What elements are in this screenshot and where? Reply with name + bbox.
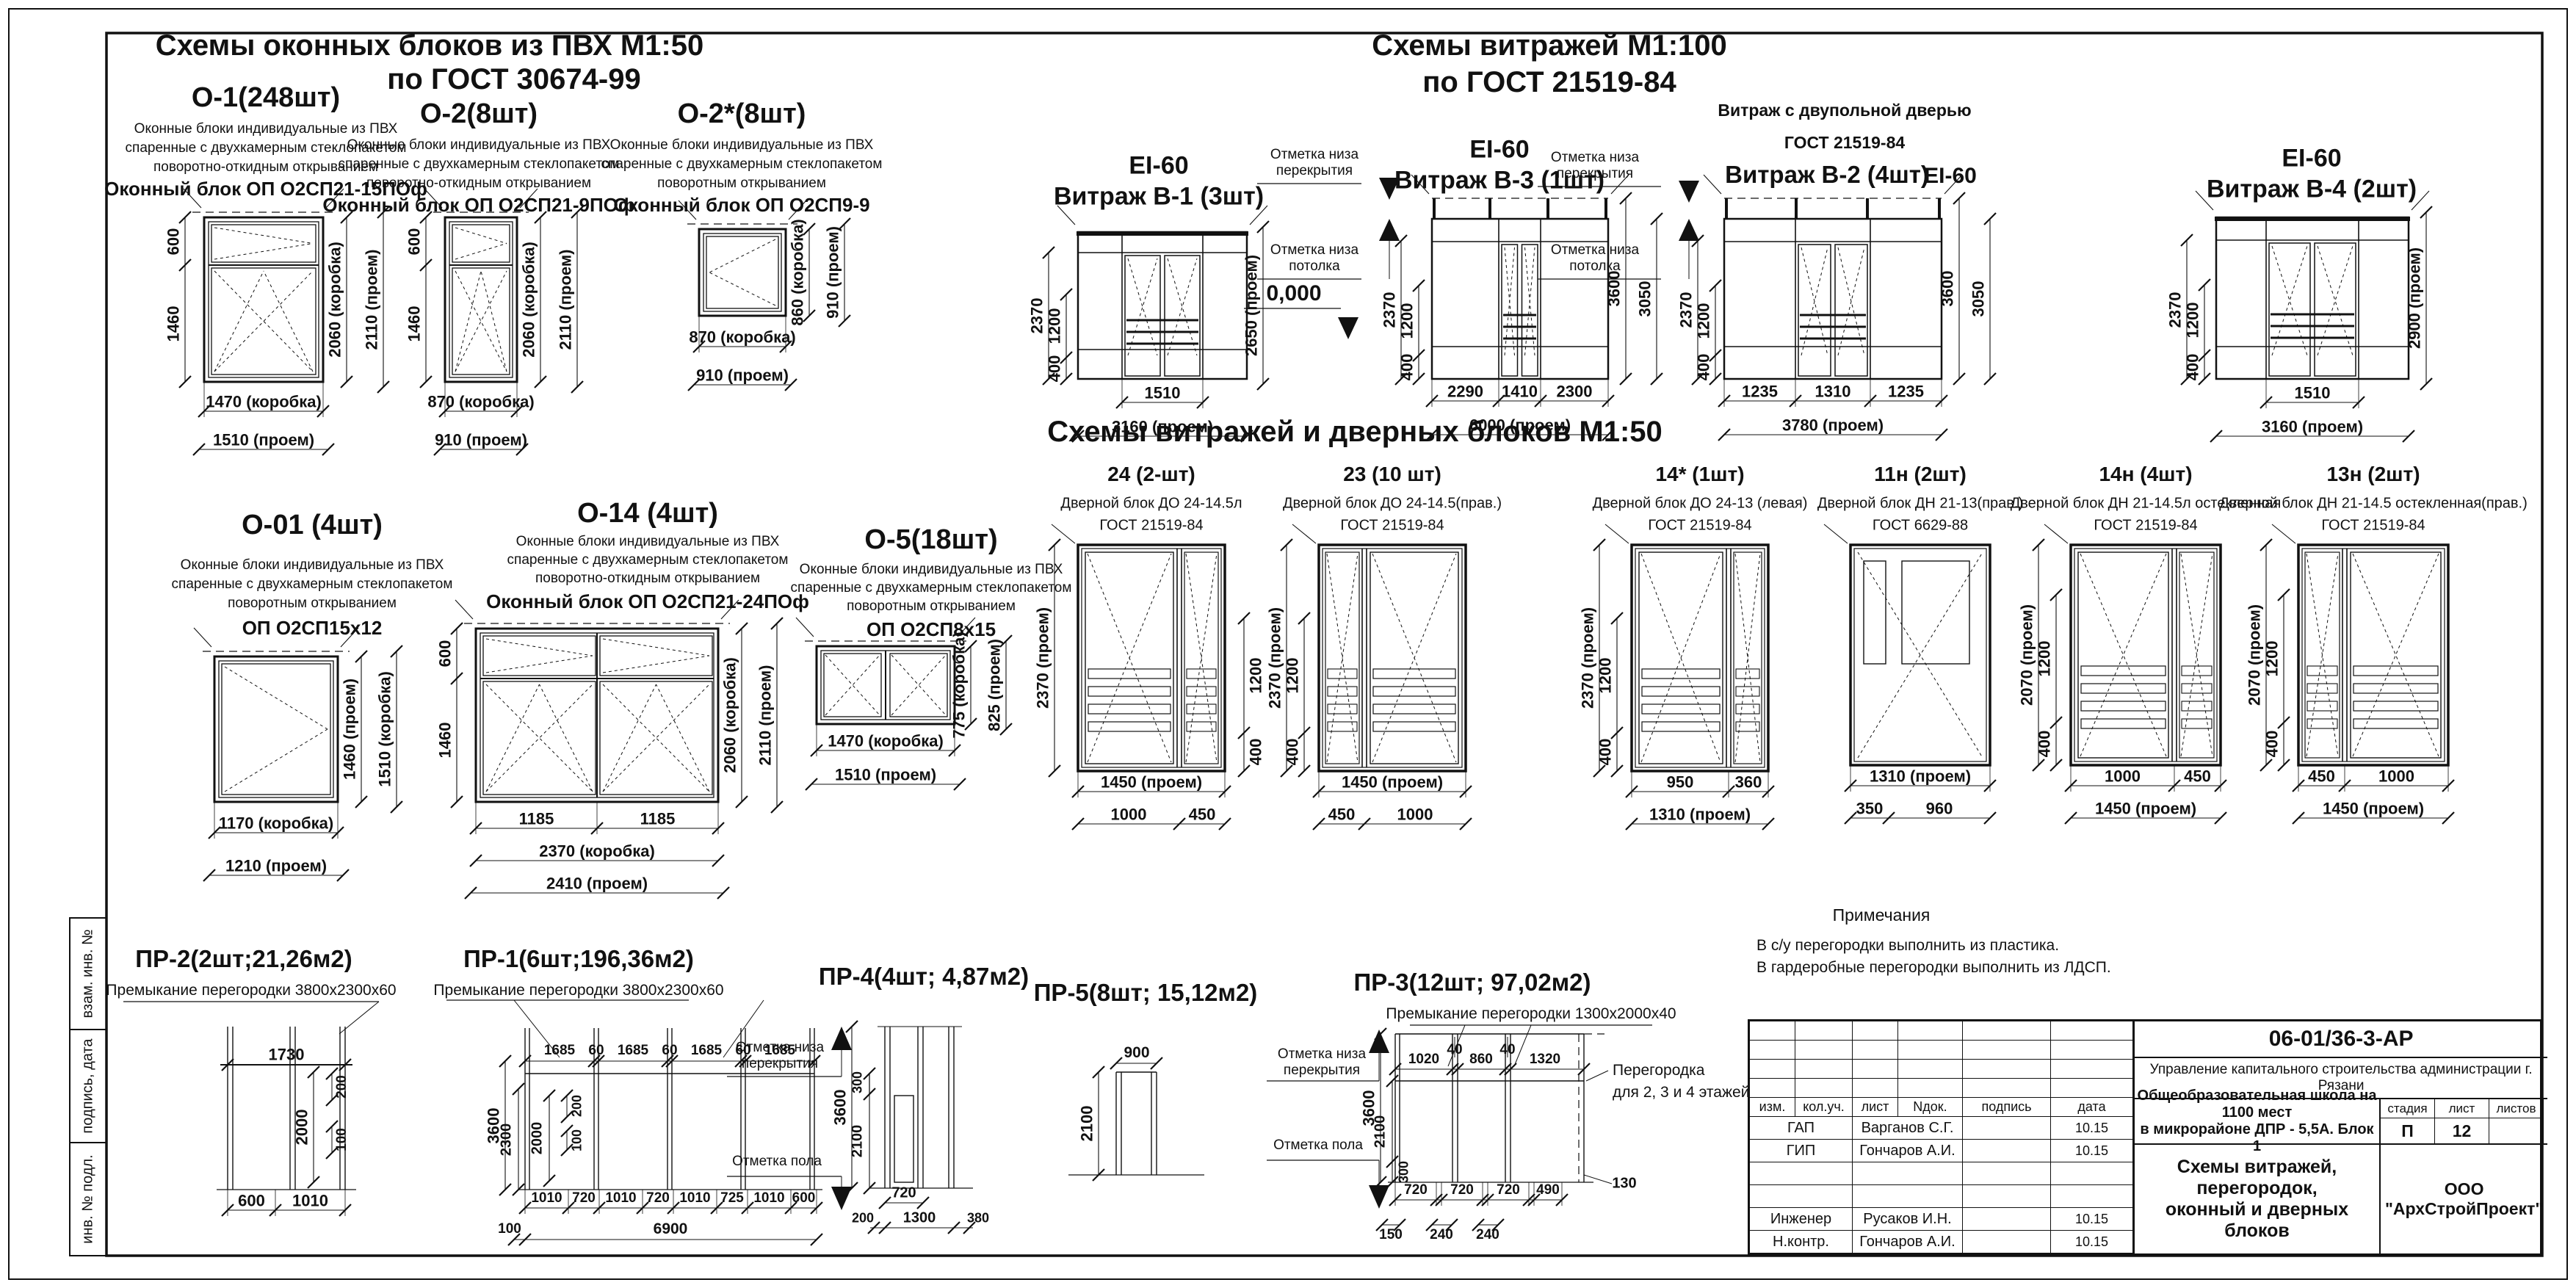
level-mark-label: Отметка низа потолка xyxy=(1531,242,1660,275)
section-title-vitrages: Схемы витражей М1:100 xyxy=(1372,29,1727,62)
stamp-role xyxy=(1750,1162,1853,1185)
dim-label: 100 xyxy=(498,1221,521,1237)
o14-desc-line: Оконные блоки индивидуальные из ПВХ xyxy=(516,534,780,550)
v4-title: Витраж В-4 (2шт) xyxy=(2207,175,2417,203)
dim-label: 1010 xyxy=(679,1190,710,1206)
v2-ei: EI-60 xyxy=(1924,164,1977,189)
d14n-title: 14н (4шт) xyxy=(2099,463,2192,486)
d23-gost: ГОСТ 21519-84 xyxy=(1340,518,1444,535)
stamp-doc-number: 06-01/36-3-АР xyxy=(2135,1021,2547,1058)
dim-label: 400 xyxy=(1694,354,1712,381)
dim-label: 1200 xyxy=(2262,641,2281,677)
stamp-col-header: Nдок. xyxy=(1898,1098,1963,1117)
dim-label: 910 (проем) xyxy=(823,226,842,319)
o14-product: Оконный блок ОП О2СП21-24ПОф xyxy=(486,591,809,613)
dim-label: 1000 xyxy=(1397,805,1433,823)
dim-label: 40 xyxy=(1499,1042,1515,1058)
dim-label: 400 xyxy=(1246,739,1265,766)
dim-label: 1200 xyxy=(2035,641,2053,677)
dim-label: 3600 xyxy=(831,1090,849,1126)
dim-label: 3050 xyxy=(1969,281,1987,317)
dim-label: 2060 (коробка) xyxy=(325,242,344,358)
stamp-signature xyxy=(1963,1185,2051,1208)
dim-label: 1510 (коробка) xyxy=(375,671,394,787)
o01-desc-line: спаренные с двухкамерным стеклопакетом xyxy=(172,576,453,593)
stamp-cell xyxy=(1750,1079,1795,1098)
dim-label: 2060 (коробка) xyxy=(720,657,739,773)
stamp-date: 10.15 xyxy=(2051,1208,2133,1231)
dim-label: 600 xyxy=(238,1191,265,1209)
dim-label: 910 (проем) xyxy=(696,366,789,384)
d13n-title: 13н (2шт) xyxy=(2326,463,2420,486)
dim-label: 1000 xyxy=(2378,767,2414,785)
dim-label: 60 xyxy=(662,1043,677,1059)
dim-label: 1460 xyxy=(405,305,423,341)
o2-product: Оконный блок ОП О2СП21-9ПОф xyxy=(322,195,634,217)
dim-label: 2370 xyxy=(1027,298,1046,334)
o01-desc-line: Оконные блоки индивидуальные из ПВХ xyxy=(181,557,444,574)
stamp-col-header: дата xyxy=(2051,1098,2133,1117)
stamp-person xyxy=(1853,1162,1963,1185)
dim-label: 1320 xyxy=(1530,1052,1560,1068)
stamp-col-header: лист xyxy=(1853,1098,1898,1117)
dim-label: 40 xyxy=(1447,1042,1462,1058)
stamp-cell xyxy=(1963,1021,2051,1041)
stamp-col-header: изм. xyxy=(1750,1098,1795,1117)
o2s-desc-line: поворотным открыванием xyxy=(657,176,826,192)
dim-label: 825 (проем) xyxy=(985,639,1003,731)
level-mark-label: Отметка низа потолка xyxy=(1251,242,1379,275)
frame-label: взам. инв. № xyxy=(80,930,97,1019)
stamp-date: 10.15 xyxy=(2051,1117,2133,1140)
dim-label: 2070 (проем) xyxy=(2017,604,2036,706)
dim-label: 2900 (проем) xyxy=(2405,247,2423,349)
d14s-title: 14* (1шт) xyxy=(1655,463,1744,486)
pr1-title: ПР-1(6шт;196,36м2) xyxy=(463,945,694,973)
dim-label: 960 xyxy=(1926,799,1953,817)
stamp-person: Гончаров А.И. xyxy=(1853,1140,1963,1162)
dim-label: 450 xyxy=(2308,767,2335,785)
dim-label: 1310 (проем) xyxy=(1870,767,1971,785)
drawing-sheet: взам. инв. №подпись, датаинв. № подл.Схе… xyxy=(0,0,2576,1288)
dim-label: 2300 xyxy=(1557,382,1593,400)
dim-label: 400 xyxy=(2183,354,2201,381)
pr5-title: ПР-5(8шт; 15,12м2) xyxy=(1034,979,1258,1007)
dim-label: 400 xyxy=(1045,355,1063,382)
dim-label: 400 xyxy=(1596,739,1614,766)
dim-label: 1410 xyxy=(1502,382,1538,400)
dim-label: 2110 (проем) xyxy=(556,250,574,350)
dim-label: 1200 xyxy=(1397,303,1416,339)
stamp-sheets-value xyxy=(2489,1118,2544,1145)
stamp-cell xyxy=(1795,1079,1853,1098)
d14s-gost: ГОСТ 21519-84 xyxy=(1648,518,1751,535)
stamp-sheets-label: листов xyxy=(2489,1099,2544,1118)
stamp-sheet-label: лист xyxy=(2435,1099,2489,1118)
dim-label: 1310 xyxy=(1815,382,1851,400)
dim-label: 1185 xyxy=(519,809,554,828)
dim-label: 720 xyxy=(1404,1182,1428,1198)
stamp-cell xyxy=(1963,1041,2051,1060)
stamp-cell xyxy=(1750,1021,1795,1041)
o14-desc-line: поворотно-откидным открыванием xyxy=(535,571,760,587)
o14-title: О-14 (4шт) xyxy=(577,498,718,530)
o2s-title: О-2*(8шт) xyxy=(678,98,806,131)
dim-label: 1235 xyxy=(1888,382,1924,400)
dim-label: 2000 xyxy=(529,1122,546,1155)
dim-label: 200 xyxy=(334,1075,350,1099)
o14-desc-line: спаренные с двухкамерным стеклопакетом xyxy=(507,552,789,568)
stamp-date xyxy=(2051,1185,2133,1208)
stamp-sheet-name-line: Схемы витражей, перегородок, xyxy=(2135,1157,2379,1199)
d14n-gost: ГОСТ 21519-84 xyxy=(2094,518,2197,535)
o2s-product: Оконный блок ОП О2СП9-9 xyxy=(613,195,869,217)
dim-label: 860 xyxy=(1469,1052,1493,1068)
d24-name: Дверной блок ДО 24-14.5л xyxy=(1060,496,1242,513)
d11n-name: Дверной блок ДН 21-13(прав.) xyxy=(1817,496,2023,513)
stamp-cell xyxy=(1853,1041,1898,1060)
dim-label: 1200 xyxy=(1045,308,1063,344)
dim-label: 380 xyxy=(967,1211,989,1226)
v2-top: Витраж с двупольной дверью xyxy=(1718,101,1971,120)
dim-label: 1200 xyxy=(1596,658,1614,694)
stamp-stage-label: стадия xyxy=(2381,1099,2435,1118)
frame-label: инв. № подл. xyxy=(80,1154,97,1243)
pr3-note-line: Перегородка xyxy=(1613,1062,1705,1079)
stamp-person: Русаков И.Н. xyxy=(1853,1208,1963,1231)
stamp-sheet-name: Схемы витражей, перегородок,оконный и дв… xyxy=(2135,1145,2381,1253)
dim-label: 400 xyxy=(2262,731,2281,758)
level-mark-label: Отметка низа перекрытия xyxy=(1251,147,1379,179)
dim-label: 600 xyxy=(792,1190,816,1206)
dim-label: 950 xyxy=(1667,773,1694,791)
d14s-name: Дверной блок ДО 24-13 (левая) xyxy=(1593,496,1808,513)
d13n-gost: ГОСТ 21519-84 xyxy=(2321,518,2425,535)
stamp-signature xyxy=(1963,1117,2051,1140)
frame-label: подпись, дата xyxy=(80,1038,97,1133)
o2s-desc-line: спаренные с двухкамерным стеклопакетом xyxy=(601,156,883,173)
dim-label: 1685 xyxy=(544,1043,575,1059)
dim-label: 3160 (проем) xyxy=(2262,417,2363,435)
dim-label: 1200 xyxy=(2183,303,2201,339)
dim-label: 910 (проем) xyxy=(435,430,527,449)
stamp-sheet-value: 12 xyxy=(2435,1118,2489,1145)
dim-label: 200 xyxy=(852,1211,874,1226)
dim-label: 1010 xyxy=(531,1190,562,1206)
dim-label: 1450 (проем) xyxy=(2095,799,2196,817)
dim-label: 2060 (коробка) xyxy=(519,242,538,358)
dim-label: 1200 xyxy=(1283,658,1301,694)
dim-label: 2070 (проем) xyxy=(2245,604,2263,706)
stamp-object-line: Общеобразовательная школа на 1100 мест xyxy=(2135,1088,2379,1121)
o5-desc-line: поворотным открыванием xyxy=(847,598,1016,615)
dim-label: 2370 (коробка) xyxy=(539,842,655,860)
dim-label: 860 (коробка) xyxy=(788,219,806,325)
v2-title: Витраж В-2 (4шт) xyxy=(1725,161,1929,189)
pr1-sub: Премыкание перегородки 3800х2300х60 xyxy=(433,982,723,999)
dim-label: 2100 xyxy=(1372,1115,1389,1148)
o1-title: О-1(248шт) xyxy=(192,82,340,115)
stamp-object: Общеобразовательная школа на 1100 меств … xyxy=(2135,1099,2381,1143)
dim-label: 1300 xyxy=(903,1210,936,1227)
o5-product: ОП О2СП8х15 xyxy=(866,619,996,641)
dim-label: 150 xyxy=(1379,1227,1403,1243)
stamp-date xyxy=(2051,1162,2133,1185)
dim-label: 600 xyxy=(164,228,182,255)
dim-label: 360 xyxy=(1735,773,1762,791)
stamp-role: ГАП xyxy=(1750,1117,1853,1140)
dim-label: 1185 xyxy=(640,809,676,828)
stamp-object-row: Общеобразовательная школа на 1100 меств … xyxy=(2135,1099,2547,1145)
stamp-stage-value: П xyxy=(2381,1118,2435,1145)
stamp-person: Варганов С.Г. xyxy=(1853,1117,1963,1140)
stamp-role: Инженер xyxy=(1750,1208,1853,1231)
stamp-col-header: кол.уч. xyxy=(1795,1098,1853,1117)
stamp-cell xyxy=(1898,1079,1963,1098)
dim-label: 200 xyxy=(570,1095,585,1117)
dim-label: 2110 (проем) xyxy=(756,665,774,766)
dim-label: 400 xyxy=(1283,739,1301,766)
dim-label: 1470 (коробка) xyxy=(828,731,944,750)
dim-label: 1450 (проем) xyxy=(2323,799,2424,817)
level-mark-label: Отметка низа перекрытия xyxy=(1258,1046,1386,1079)
dim-label: 1010 xyxy=(753,1190,784,1206)
dim-label: 1000 xyxy=(2105,767,2141,785)
stamp-date: 10.15 xyxy=(2051,1140,2133,1162)
v1-title: Витраж В-1 (3шт) xyxy=(1054,182,1264,211)
level-mark-label: Отметка низа перекрытия xyxy=(716,1040,844,1072)
stamp-cell xyxy=(1795,1060,1853,1079)
dim-label: 2100 xyxy=(850,1125,866,1158)
dim-label: 720 xyxy=(646,1190,670,1206)
title-block: изм.кол.уч.листNдок.подписьдатаГАПВарган… xyxy=(1748,1019,2542,1256)
level-mark-label: Отметка пола xyxy=(713,1154,842,1170)
stamp-cell xyxy=(1853,1079,1898,1098)
dim-label: 2370 (проем) xyxy=(1033,607,1052,709)
stamp-cell xyxy=(2051,1021,2133,1041)
dim-label: 1200 xyxy=(1246,658,1265,694)
stamp-cell xyxy=(1853,1060,1898,1079)
dim-label: 720 xyxy=(1450,1182,1474,1198)
stamp-revision-grid: изм.кол.уч.листNдок.подписьдата xyxy=(1750,1021,2133,1117)
d11n-gost: ГОСТ 6629-88 xyxy=(1873,518,1968,535)
dim-label: 3600 xyxy=(1938,271,1956,307)
stamp-cell xyxy=(1963,1060,2051,1079)
notes-line: В гардеробные перегородки выполнить из Л… xyxy=(1756,959,2111,977)
v4-ei: EI-60 xyxy=(2282,144,2341,173)
stamp-person xyxy=(1853,1185,1963,1208)
dim-label: 900 xyxy=(1124,1044,1149,1062)
stamp-role: ГИП xyxy=(1750,1140,1853,1162)
stamp-cell xyxy=(1795,1041,1853,1060)
stamp-col-header: подпись xyxy=(1963,1098,2051,1117)
dim-label: 1450 (проем) xyxy=(1342,773,1443,791)
stamp-cell xyxy=(1853,1021,1898,1041)
dim-label: 350 xyxy=(1856,799,1884,817)
dim-label: 450 xyxy=(1189,805,1216,823)
pr3-title: ПР-3(12шт; 97,02м2) xyxy=(1354,969,1591,996)
o2s-desc-line: Оконные блоки индивидуальные из ПВХ xyxy=(610,137,874,153)
pr3-sub: Премыкание перегородки 1300х2000х40 xyxy=(1386,1005,1676,1023)
dim-label: 130 xyxy=(1612,1176,1636,1193)
v1-ei: EI-60 xyxy=(1129,151,1188,180)
dim-label: 1510 (проем) xyxy=(835,765,936,784)
stamp-sheet-name-line: оконный и дверных блоков xyxy=(2135,1199,2379,1242)
level-mark-label: Отметка низа перекрытия xyxy=(1531,150,1660,182)
stamp-name-row: Схемы витражей, перегородок,оконный и дв… xyxy=(2135,1145,2547,1253)
stamp-person: Гончаров А.И. xyxy=(1853,1231,1963,1253)
d11n-title: 11н (2шт) xyxy=(1874,463,1967,486)
dim-label: 1510 (проем) xyxy=(213,430,314,449)
dim-label: 450 xyxy=(2184,767,2211,785)
pr2-sub: Премыкание перегородки 3800х2300х60 xyxy=(106,982,396,999)
section-title-windows-gost: по ГОСТ 30674-99 xyxy=(387,62,640,96)
dim-label: 2290 xyxy=(1447,382,1483,400)
stamp-cell xyxy=(1898,1041,1963,1060)
dim-label: 2000 xyxy=(292,1110,311,1146)
dim-label: 1450 (проем) xyxy=(1101,773,1202,791)
dim-label: 720 xyxy=(572,1190,596,1206)
dim-label: 6900 xyxy=(654,1220,688,1238)
dim-label: 600 xyxy=(405,228,423,255)
o2-desc-line: спаренные с двухкамерным стеклопакетом xyxy=(339,156,620,173)
dim-label: 2370 (проем) xyxy=(1578,607,1596,709)
dim-label: 1470 (коробка) xyxy=(206,392,322,410)
dim-label: 1460 (проем) xyxy=(340,679,358,780)
stamp-cell xyxy=(1795,1021,1853,1041)
dim-label: 870 (коробка) xyxy=(427,392,534,410)
dim-label: 3050 xyxy=(1635,281,1654,317)
d24-gost: ГОСТ 21519-84 xyxy=(1099,518,1203,535)
dim-label: 720 xyxy=(891,1185,916,1202)
stamp-signature xyxy=(1963,1208,2051,1231)
level-value: 0,000 xyxy=(1266,281,1321,307)
dim-label: 490 xyxy=(1536,1182,1560,1198)
stamp-right-part: 06-01/36-3-АРУправление капитального стр… xyxy=(2135,1021,2547,1253)
stamp-cell xyxy=(2051,1041,2133,1060)
pr3-note-line: для 2, 3 и 4 этажей xyxy=(1613,1084,1749,1101)
o01-product: ОП О2СП15х12 xyxy=(242,618,383,640)
section-title-windows: Схемы оконных блоков из ПВХ М1:50 xyxy=(156,29,703,62)
stamp-cell xyxy=(1963,1079,2051,1098)
dim-label: 3780 (проем) xyxy=(1782,416,1884,434)
dim-label: 100 xyxy=(334,1128,350,1151)
o2-desc-line: поворотно-откидным открыванием xyxy=(366,176,591,192)
dim-label: 1730 xyxy=(269,1045,305,1063)
dim-label: 300 xyxy=(850,1071,866,1093)
dim-label: 870 (коробка) xyxy=(689,328,795,346)
stamp-cell xyxy=(2051,1079,2133,1098)
dim-label: 240 xyxy=(1476,1227,1499,1243)
dim-label: 2300 xyxy=(499,1123,515,1156)
dim-label: 1510 xyxy=(2295,383,2331,402)
dim-label: 2370 xyxy=(1676,292,1695,328)
dim-label: 2370 xyxy=(2166,292,2184,328)
dim-label: 3600 xyxy=(1604,271,1623,307)
notes-title: Примечания xyxy=(1833,905,1931,925)
dim-label: 240 xyxy=(1430,1227,1453,1243)
dim-label: 720 xyxy=(1497,1182,1520,1198)
dim-label: 1460 xyxy=(435,723,454,759)
pr2-title: ПР-2(2шт;21,26м2) xyxy=(135,945,352,973)
d13n-name: Дверной блок ДН 21-14.5 остекленная(прав… xyxy=(2219,496,2527,513)
dim-label: 1020 xyxy=(1408,1052,1439,1068)
section-title-vitrages-gost: по ГОСТ 21519-84 xyxy=(1422,65,1676,99)
level-mark-label: Отметка пола xyxy=(1254,1137,1383,1154)
stamp-signature xyxy=(1963,1231,2051,1253)
stamp-date: 10.15 xyxy=(2051,1231,2133,1253)
dim-label: 1685 xyxy=(618,1043,648,1059)
stamp-cell xyxy=(1898,1060,1963,1079)
stamp-cell xyxy=(1898,1021,1963,1041)
stamp-role xyxy=(1750,1185,1853,1208)
o2-desc-line: Оконные блоки индивидуальные из ПВХ xyxy=(347,137,611,153)
dim-label: 1310 (проем) xyxy=(1649,805,1751,823)
stamp-company: ООО "АрхСтройПроект" xyxy=(2381,1145,2547,1253)
o2-title: О-2(8шт) xyxy=(420,98,538,131)
dim-label: 1210 (проем) xyxy=(225,856,327,875)
o5-title: О-5(18шт) xyxy=(864,524,997,557)
dim-label: 400 xyxy=(2035,731,2053,758)
dim-label: 725 xyxy=(720,1190,744,1206)
dim-label: 3160 (проем) xyxy=(1112,417,1213,435)
dim-label: 100 xyxy=(570,1129,585,1151)
stamp-stage-grid: стадиялистлистовП12 xyxy=(2381,1099,2547,1143)
o01-desc-line: поворотным открыванием xyxy=(228,596,397,612)
dim-label: 450 xyxy=(1328,805,1356,823)
dim-label: 6000 (проем) xyxy=(1469,416,1571,434)
v2-gost: ГОСТ 21519-84 xyxy=(1784,133,1905,152)
o01-title: О-01 (4шт) xyxy=(242,510,383,542)
dim-label: 1510 xyxy=(1145,383,1181,402)
d23-title: 23 (10 шт) xyxy=(1343,463,1441,486)
dim-label: 2370 xyxy=(1380,292,1398,328)
stamp-signature xyxy=(1963,1162,2051,1185)
dim-label: 1010 xyxy=(605,1190,636,1206)
o5-desc-line: спаренные с двухкамерным стеклопакетом xyxy=(791,580,1072,596)
o1-desc-line: Оконные блоки индивидуальные из ПВХ xyxy=(134,121,398,137)
v3-ei: EI-60 xyxy=(1469,135,1529,164)
dim-label: 1200 xyxy=(1694,303,1712,339)
dim-label: 1235 xyxy=(1742,382,1778,400)
notes-line: В с/у перегородки выполнить из пластика. xyxy=(1756,937,2059,955)
dim-label: 775 (коробка) xyxy=(949,632,968,738)
stamp-signature-table: изм.кол.уч.листNдок.подписьдатаГАПВарган… xyxy=(1750,1021,2135,1253)
dim-label: 300 xyxy=(1397,1161,1412,1183)
pr4-title: ПР-4(4шт; 4,87м2) xyxy=(819,963,1029,991)
d24-title: 24 (2-шт) xyxy=(1107,463,1195,486)
dim-label: 60 xyxy=(588,1043,604,1059)
dim-label: 1000 xyxy=(1111,805,1147,823)
dim-label: 400 xyxy=(1397,354,1416,381)
stamp-signature xyxy=(1963,1140,2051,1162)
o5-desc-line: Оконные блоки индивидуальные из ПВХ xyxy=(800,562,1063,578)
dim-label: 1170 (коробка) xyxy=(219,814,333,832)
dim-label: 1010 xyxy=(292,1191,328,1209)
dim-label: 2410 (проем) xyxy=(546,874,648,892)
dim-label: 600 xyxy=(435,640,454,667)
dim-label: 2110 (проем) xyxy=(362,250,380,350)
dim-label: 1460 xyxy=(164,305,182,341)
stamp-role: Н.контр. xyxy=(1750,1231,1853,1253)
d23-name: Дверной блок ДО 24-14.5(прав.) xyxy=(1283,496,1502,513)
dim-label: 2100 xyxy=(1077,1106,1096,1142)
stamp-cell xyxy=(1750,1041,1795,1060)
stamp-cell xyxy=(1750,1060,1795,1079)
stamp-cell xyxy=(2051,1060,2133,1079)
stamp-people-grid: ГАПВарганов С.Г.10.15ГИПГончаров А.И.10.… xyxy=(1750,1117,2133,1253)
dim-label: 2370 (проем) xyxy=(1265,607,1284,709)
